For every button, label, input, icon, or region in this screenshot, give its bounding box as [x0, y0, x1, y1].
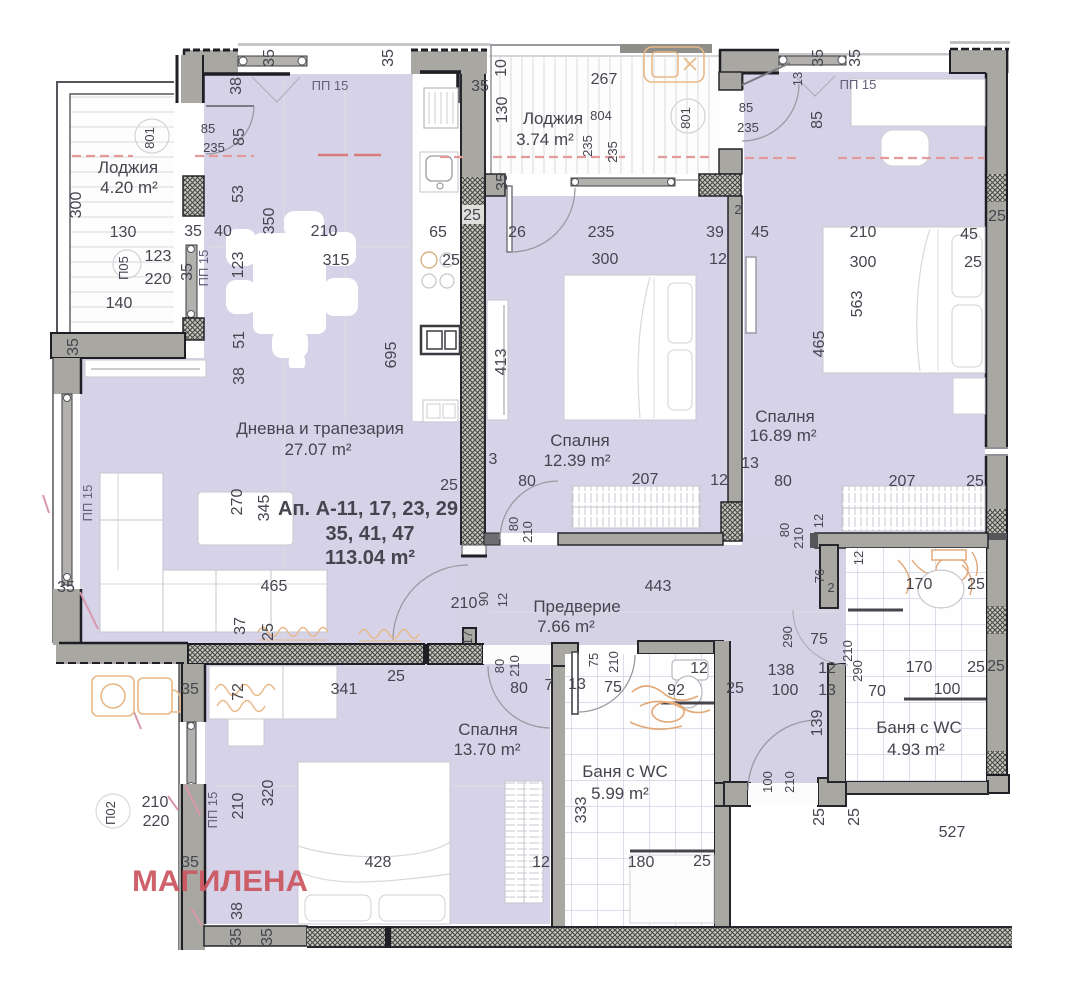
svg-text:695: 695 — [383, 342, 400, 369]
svg-text:75: 75 — [604, 679, 622, 696]
svg-text:П05: П05 — [116, 256, 131, 280]
svg-text:90: 90 — [476, 592, 491, 606]
svg-text:2: 2 — [734, 202, 741, 217]
svg-text:Баня с WC: Баня с WC — [582, 762, 667, 781]
svg-text:37: 37 — [232, 617, 249, 635]
svg-text:220: 220 — [143, 813, 170, 830]
svg-text:85: 85 — [809, 111, 826, 129]
svg-text:12: 12 — [818, 660, 836, 677]
svg-text:210: 210 — [451, 595, 478, 612]
svg-text:210: 210 — [840, 640, 855, 662]
svg-text:25: 25 — [463, 207, 481, 224]
svg-text:300: 300 — [592, 251, 619, 268]
svg-text:25: 25 — [726, 680, 744, 697]
svg-text:235: 235 — [580, 135, 595, 157]
svg-text:80: 80 — [492, 659, 507, 673]
svg-text:25: 25 — [964, 254, 982, 271]
svg-text:МАГИЛЕНА: МАГИЛЕНА — [132, 865, 308, 898]
svg-text:17: 17 — [460, 631, 475, 645]
svg-text:85: 85 — [739, 100, 753, 115]
svg-text:75: 75 — [586, 653, 601, 667]
svg-text:300: 300 — [850, 254, 877, 271]
svg-text:Баня с WC: Баня с WC — [876, 718, 961, 737]
svg-text:13: 13 — [741, 455, 759, 472]
svg-text:39: 39 — [706, 224, 724, 241]
svg-text:70: 70 — [868, 683, 886, 700]
svg-text:350: 350 — [261, 208, 278, 235]
svg-text:ПП 15: ПП 15 — [840, 77, 877, 92]
svg-text:443: 443 — [645, 578, 672, 595]
svg-text:235: 235 — [605, 141, 620, 163]
svg-text:413: 413 — [493, 349, 510, 376]
svg-text:Спалня: Спалня — [755, 407, 814, 426]
svg-text:801: 801 — [142, 127, 157, 149]
svg-text:3.74 m²: 3.74 m² — [516, 130, 574, 149]
svg-text:270: 270 — [229, 489, 246, 516]
svg-text:35: 35 — [181, 681, 199, 698]
svg-text:210: 210 — [230, 793, 247, 820]
svg-text:235: 235 — [203, 140, 225, 155]
svg-text:210: 210 — [507, 655, 522, 677]
svg-text:13: 13 — [818, 682, 836, 699]
svg-text:123: 123 — [145, 248, 172, 265]
svg-text:Лоджия: Лоджия — [523, 109, 583, 128]
svg-text:Предверие: Предверие — [533, 597, 620, 616]
svg-text:527: 527 — [939, 824, 966, 841]
svg-text:12: 12 — [710, 472, 728, 489]
svg-text:7: 7 — [545, 677, 554, 694]
svg-text:72: 72 — [230, 683, 247, 701]
svg-text:100: 100 — [772, 682, 799, 699]
svg-text:804: 804 — [590, 108, 612, 123]
svg-text:140: 140 — [106, 295, 133, 312]
svg-text:45: 45 — [751, 224, 769, 241]
svg-text:210: 210 — [606, 651, 621, 673]
svg-text:25: 25 — [967, 659, 985, 676]
svg-text:100: 100 — [760, 771, 775, 793]
svg-text:35: 35 — [847, 49, 864, 67]
svg-text:35: 35 — [184, 223, 202, 240]
svg-text:12.39 m²: 12.39 m² — [543, 451, 610, 470]
svg-text:35: 35 — [810, 49, 827, 67]
svg-text:3: 3 — [489, 451, 498, 468]
svg-text:35: 35 — [65, 338, 82, 356]
svg-text:4.20 m²: 4.20 m² — [100, 178, 158, 197]
svg-text:25: 25 — [442, 252, 460, 269]
svg-text:207: 207 — [889, 473, 916, 490]
svg-text:25: 25 — [693, 853, 711, 870]
svg-text:210: 210 — [791, 527, 806, 549]
svg-text:12: 12 — [532, 854, 550, 871]
svg-text:12: 12 — [709, 251, 727, 268]
svg-text:801: 801 — [678, 107, 693, 129]
svg-text:210: 210 — [782, 771, 797, 793]
svg-text:80: 80 — [777, 523, 792, 537]
svg-text:ПП 15: ПП 15 — [196, 250, 211, 287]
svg-text:Ап. А-11, 17, 23, 29: Ап. А-11, 17, 23, 29 — [278, 498, 458, 520]
svg-text:300: 300 — [68, 192, 85, 219]
svg-text:35: 35 — [57, 579, 75, 596]
svg-text:38: 38 — [228, 77, 245, 95]
svg-text:85: 85 — [231, 128, 248, 146]
svg-text:210: 210 — [520, 521, 535, 543]
svg-text:2: 2 — [827, 580, 834, 595]
svg-text:35, 41, 47: 35, 41, 47 — [326, 523, 415, 545]
svg-text:10: 10 — [493, 59, 510, 77]
svg-text:7.66 m²: 7.66 m² — [537, 617, 595, 636]
svg-text:80: 80 — [510, 680, 528, 697]
svg-text:25: 25 — [260, 623, 277, 641]
svg-text:130: 130 — [110, 224, 137, 241]
svg-text:80: 80 — [518, 473, 536, 490]
svg-text:35: 35 — [380, 49, 397, 67]
svg-text:45: 45 — [960, 226, 978, 243]
svg-text:27.07 m²: 27.07 m² — [284, 440, 351, 459]
svg-text:25: 25 — [987, 658, 1005, 675]
svg-text:563: 563 — [849, 291, 866, 318]
svg-text:210: 210 — [850, 224, 877, 241]
svg-text:25: 25 — [387, 668, 405, 685]
svg-text:ПП 15: ПП 15 — [312, 78, 349, 93]
svg-text:170: 170 — [906, 659, 933, 676]
svg-text:235: 235 — [588, 224, 615, 241]
svg-text:180: 180 — [628, 854, 655, 871]
svg-text:85: 85 — [201, 121, 215, 136]
svg-text:26: 26 — [508, 224, 526, 241]
svg-text:35: 35 — [259, 928, 276, 946]
svg-text:113.04 m²: 113.04 m² — [325, 547, 415, 569]
svg-text:Спалня: Спалня — [458, 720, 517, 739]
svg-text:35: 35 — [261, 49, 278, 67]
svg-text:25: 25 — [846, 808, 863, 826]
svg-text:П02: П02 — [103, 801, 118, 825]
svg-text:100: 100 — [934, 681, 961, 698]
svg-text:220: 220 — [145, 271, 172, 288]
svg-text:76: 76 — [812, 569, 827, 583]
svg-text:12: 12 — [811, 514, 826, 528]
svg-text:5.99 m²: 5.99 m² — [591, 784, 649, 803]
svg-text:139: 139 — [809, 710, 826, 737]
svg-text:170: 170 — [906, 576, 933, 593]
svg-text:ПП 15: ПП 15 — [205, 792, 220, 829]
svg-text:210: 210 — [142, 794, 169, 811]
svg-text:210: 210 — [311, 223, 338, 240]
svg-text:130: 130 — [494, 97, 511, 124]
svg-text:25: 25 — [966, 473, 984, 490]
svg-text:25: 25 — [811, 808, 828, 826]
svg-text:51: 51 — [231, 331, 248, 349]
svg-text:123: 123 — [230, 252, 247, 279]
svg-text:25: 25 — [988, 208, 1006, 225]
svg-text:4.93 m²: 4.93 m² — [887, 740, 945, 759]
svg-text:25: 25 — [967, 576, 985, 593]
svg-text:80: 80 — [506, 517, 521, 531]
svg-text:428: 428 — [365, 854, 392, 871]
svg-text:13.70 m²: 13.70 m² — [453, 740, 520, 759]
svg-text:320: 320 — [260, 780, 277, 807]
svg-text:345: 345 — [256, 495, 273, 522]
svg-text:12: 12 — [690, 660, 708, 677]
svg-text:53: 53 — [230, 185, 247, 203]
svg-text:Спалня: Спалня — [550, 431, 609, 450]
svg-text:35: 35 — [228, 928, 245, 946]
svg-text:235: 235 — [737, 120, 759, 135]
svg-text:92: 92 — [667, 682, 685, 699]
svg-text:138: 138 — [768, 662, 795, 679]
svg-text:12: 12 — [851, 551, 866, 565]
svg-text:Дневна и трапезария: Дневна и трапезария — [236, 419, 404, 438]
svg-text:465: 465 — [261, 578, 288, 595]
svg-text:207: 207 — [632, 471, 659, 488]
svg-text:Лоджия: Лоджия — [98, 158, 158, 177]
svg-text:38: 38 — [229, 902, 246, 920]
svg-text:333: 333 — [573, 797, 590, 824]
svg-text:267: 267 — [591, 71, 618, 88]
svg-text:16.89 m²: 16.89 m² — [749, 426, 816, 445]
svg-text:40: 40 — [214, 223, 232, 240]
svg-text:13: 13 — [790, 72, 805, 86]
svg-text:290: 290 — [780, 626, 795, 648]
svg-text:75: 75 — [810, 631, 828, 648]
svg-text:341: 341 — [331, 681, 358, 698]
svg-text:13: 13 — [568, 676, 586, 693]
svg-text:35: 35 — [494, 173, 511, 191]
svg-text:80: 80 — [774, 473, 792, 490]
svg-text:ПП 15: ПП 15 — [80, 485, 95, 522]
svg-text:35: 35 — [179, 263, 196, 281]
svg-text:65: 65 — [429, 224, 447, 241]
svg-text:25: 25 — [440, 477, 458, 494]
svg-text:315: 315 — [323, 252, 350, 269]
svg-text:290: 290 — [850, 660, 865, 682]
svg-text:35: 35 — [471, 78, 489, 95]
svg-text:38: 38 — [231, 367, 248, 385]
svg-text:12: 12 — [495, 593, 510, 607]
svg-text:465: 465 — [811, 331, 828, 358]
